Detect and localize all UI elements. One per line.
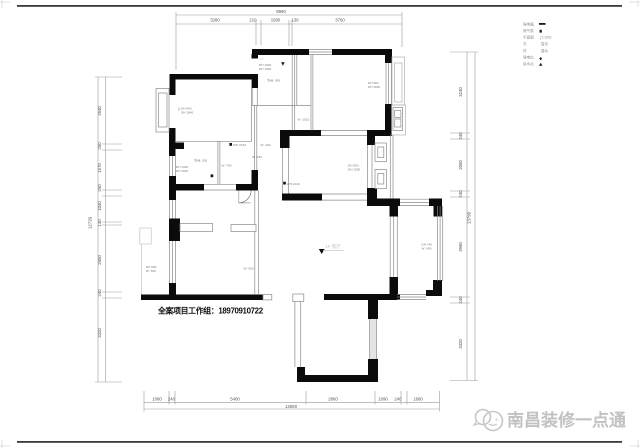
svg-text:130: 130 <box>97 219 102 227</box>
svg-text:2640: 2640 <box>97 106 102 116</box>
svg-text:建水: 建水 <box>541 48 549 53</box>
svg-text:250: 250 <box>97 184 102 192</box>
svg-text:1680: 1680 <box>413 397 423 402</box>
svg-text:DH 1040: DH 1040 <box>176 169 188 173</box>
svg-text:250: 250 <box>97 142 102 150</box>
svg-text:12590: 12590 <box>285 404 298 409</box>
svg-text:强电箱: 强电箱 <box>523 21 534 26</box>
svg-text:(1:100): (1:100) <box>540 36 551 40</box>
svg-text:DH 1040: DH 1040 <box>259 67 271 71</box>
svg-text:12720: 12720 <box>88 216 93 229</box>
svg-text:强电位: 强电位 <box>523 54 534 59</box>
svg-text:3960: 3960 <box>458 242 463 252</box>
svg-text:130: 130 <box>291 18 299 23</box>
svg-text:全案项目工作组：18970910722: 全案项目工作组：18970910722 <box>157 306 264 316</box>
svg-text:1580: 1580 <box>271 18 281 23</box>
svg-text:3760: 3760 <box>335 18 345 23</box>
svg-text:W -1015: W -1015 <box>298 118 310 122</box>
svg-text:5400: 5400 <box>230 397 240 402</box>
svg-text:2650: 2650 <box>97 255 102 265</box>
svg-text:1040: 1040 <box>97 201 102 211</box>
svg-text:DH 1500: DH 1500 <box>348 168 360 172</box>
svg-text:△©: △© <box>259 57 264 61</box>
svg-text:WH 2120: WH 2120 <box>287 182 300 186</box>
svg-text:240: 240 <box>168 397 176 402</box>
svg-text:平面图: 平面图 <box>523 35 534 40</box>
svg-text:240: 240 <box>394 397 402 402</box>
svg-text:1F 客厅: 1F 客厅 <box>326 243 342 250</box>
svg-text:W -150: W -150 <box>252 155 262 159</box>
svg-text:1080: 1080 <box>152 397 162 402</box>
svg-text:DH 1840: DH 1840 <box>368 85 380 89</box>
svg-text:WH 2120: WH 2120 <box>233 143 246 147</box>
svg-text:3320: 3320 <box>458 339 463 349</box>
svg-text:1090: 1090 <box>378 397 388 402</box>
svg-text:2860: 2860 <box>328 397 338 402</box>
svg-text:3320: 3320 <box>97 328 102 338</box>
svg-text:W -100: W -100 <box>261 143 271 147</box>
svg-text:南昌装修一点通: 南昌装修一点通 <box>507 410 626 430</box>
svg-text:240: 240 <box>458 190 463 198</box>
svg-text:W -700: W -700 <box>222 164 232 168</box>
svg-text:材: 材 <box>523 48 527 53</box>
svg-text:W -500: W -500 <box>146 269 156 273</box>
svg-text:W -360: W -360 <box>422 247 432 251</box>
svg-text:节点: 300: 节点: 300 <box>267 78 280 83</box>
svg-text:240: 240 <box>458 132 463 140</box>
svg-text:给水点: 给水点 <box>523 61 534 66</box>
svg-text:13790: 13790 <box>467 211 472 224</box>
svg-text:240: 240 <box>458 296 463 304</box>
svg-text:2050: 2050 <box>458 160 463 170</box>
svg-text:智合: 智合 <box>541 41 549 46</box>
svg-text:1570: 1570 <box>97 163 102 173</box>
svg-text:240: 240 <box>97 289 102 297</box>
svg-text:3280: 3280 <box>210 18 220 23</box>
svg-text:210: 210 <box>249 18 257 23</box>
svg-text:节点: 200: 节点: 200 <box>194 158 207 163</box>
svg-text:W -360: W -360 <box>244 267 254 271</box>
svg-text:燃气表: 燃气表 <box>523 28 534 33</box>
svg-text:天: 天 <box>523 42 527 46</box>
svg-text:3240: 3240 <box>458 87 463 97</box>
svg-text:8960: 8960 <box>276 9 286 14</box>
svg-text:DH 1840: DH 1840 <box>181 110 193 114</box>
